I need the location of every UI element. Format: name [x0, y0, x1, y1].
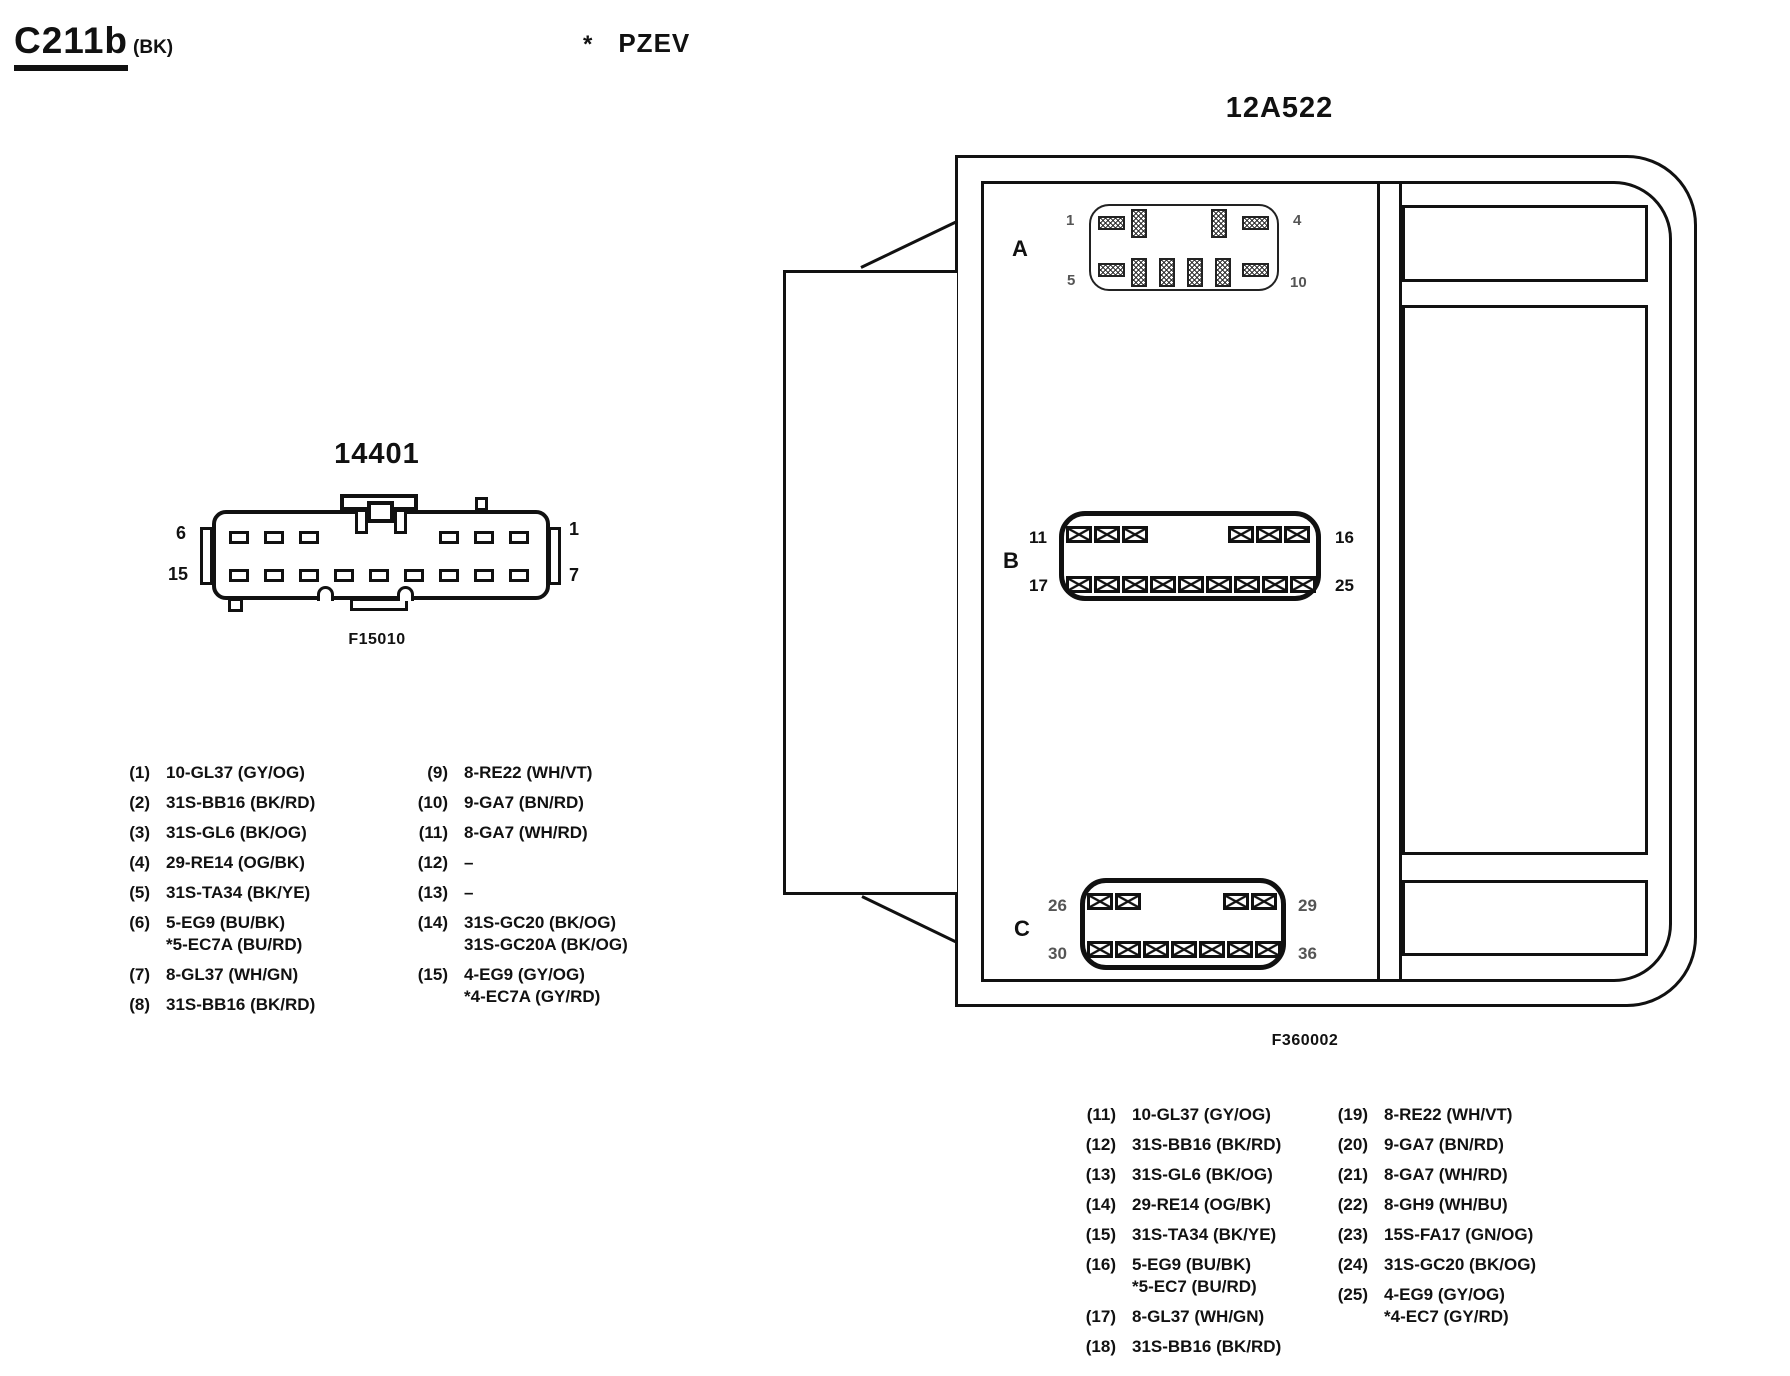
wire-item-number: (8) [112, 994, 150, 1016]
wire-list-item: (3) 31S-GL6 (BK/OG) [112, 822, 315, 844]
pin-label-c36: 36 [1298, 944, 1317, 964]
pin-box [1290, 576, 1316, 593]
wire-item-text: 4-EG9 (GY/OG) *4-EC7 (GY/RD) [1384, 1284, 1509, 1328]
wire-item-number: (21) [1330, 1164, 1368, 1186]
connector-b-pins-top-right [1228, 526, 1310, 543]
wire-list-item: (1) 10-GL37 (GY/OG) [112, 762, 315, 784]
pin-label-a4: 4 [1293, 212, 1301, 229]
wire-item-number: (16) [1078, 1254, 1116, 1298]
wire-item-text: 8-GL37 (WH/GN) [166, 964, 298, 986]
wire-list-item: (22) 8-GH9 (WH/BU) [1330, 1194, 1536, 1216]
pin-box [474, 569, 494, 582]
wire-item-number: (20) [1330, 1134, 1368, 1156]
pin-row-1-right [439, 531, 529, 544]
pin-box [229, 531, 249, 544]
pin-box [509, 531, 529, 544]
wire-list-item: (11) 10-GL37 (GY/OG) [1078, 1104, 1281, 1126]
wire-item-text: – [464, 882, 473, 904]
wiring-diagram-page: C211b(BK) *PZEV 14401 [0, 0, 1790, 1376]
pin-label-c29: 29 [1298, 896, 1317, 916]
flange-diagonal-bottom [861, 895, 958, 944]
pin-box [1131, 209, 1147, 238]
wire-list-item: (24) 31S-GC20 (BK/OG) [1330, 1254, 1536, 1276]
section-b-label: B [1003, 548, 1019, 574]
wire-item-number: (12) [1078, 1134, 1116, 1156]
panel-divider-line-left [1377, 181, 1380, 982]
wire-item-text: 31S-BB16 (BK/RD) [166, 792, 315, 814]
wire-item-text: 5-EG9 (BU/BK) *5-EC7 (BU/RD) [1132, 1254, 1257, 1298]
pin-row-2 [229, 569, 529, 582]
top-small-tab [475, 497, 488, 511]
bottom-notch-right [397, 586, 414, 601]
wire-list-14401-col1: (1) 10-GL37 (GY/OG) (2) 31S-BB16 (BK/RD)… [112, 762, 315, 1024]
wire-list-item: (13) 31S-GL6 (BK/OG) [1078, 1164, 1281, 1186]
pin-box [474, 531, 494, 544]
wire-list-item: (15) 4-EG9 (GY/OG) *4-EC7A (GY/RD) [410, 964, 628, 1008]
wire-list-item: (2) 31S-BB16 (BK/RD) [112, 792, 315, 814]
page-header: C211b(BK) [14, 20, 173, 71]
connector-b-pins-top-left [1066, 526, 1148, 543]
connector-14401-caption: F15010 [322, 631, 432, 649]
pin-box [1215, 258, 1231, 287]
pin-box [1098, 263, 1125, 277]
pin-box [1228, 526, 1254, 543]
pin-box [1171, 941, 1197, 958]
wire-list-item: (23) 15S-FA17 (GN/OG) [1330, 1224, 1536, 1246]
pin-box [1178, 576, 1204, 593]
pin-label-15: 15 [168, 564, 188, 585]
pin-box [1131, 258, 1147, 287]
bottom-notch-left [317, 586, 334, 601]
latch-prong-right [394, 509, 407, 534]
wire-list-item: (14) 29-RE14 (OG/BK) [1078, 1194, 1281, 1216]
connector-c-pins-top-left [1087, 893, 1141, 910]
wire-list-item: (15) 31S-TA34 (BK/YE) [1078, 1224, 1281, 1246]
wire-list-item: (16) 5-EG9 (BU/BK) *5-EC7 (BU/RD) [1078, 1254, 1281, 1298]
wire-list-item: (11) 8-GA7 (WH/RD) [410, 822, 628, 844]
wire-item-number: (15) [410, 964, 448, 1008]
wire-item-text: 8-GH9 (WH/BU) [1384, 1194, 1508, 1216]
latch-center-tab [367, 501, 394, 523]
connector-14401-label: 14401 [322, 438, 432, 471]
wire-item-text: 8-GL37 (WH/GN) [1132, 1306, 1264, 1328]
wire-list-item: (8) 31S-BB16 (BK/RD) [112, 994, 315, 1016]
side-rib-bottom [1402, 880, 1648, 956]
wire-list-14401-col2: (9) 8-RE22 (WH/VT) (10) 9-GA7 (BN/RD) (1… [410, 762, 628, 1016]
pin-box [1122, 526, 1148, 543]
pin-box [1159, 258, 1175, 287]
wire-item-text: 31S-GC20 (BK/OG) [1384, 1254, 1536, 1276]
wire-list-item: (12) 31S-BB16 (BK/RD) [1078, 1134, 1281, 1156]
wire-item-number: (13) [410, 882, 448, 904]
pin-label-6: 6 [176, 523, 186, 544]
wire-item-number: (7) [112, 964, 150, 986]
connector-14401-body [212, 510, 550, 600]
pin-label-1: 1 [569, 519, 579, 540]
wire-item-number: (19) [1330, 1104, 1368, 1126]
wire-item-number: (13) [1078, 1164, 1116, 1186]
pin-box [1115, 893, 1141, 910]
wire-item-text: 9-GA7 (BN/RD) [1384, 1134, 1504, 1156]
pin-box [439, 531, 459, 544]
wire-list-item: (19) 8-RE22 (WH/VT) [1330, 1104, 1536, 1126]
footnote-label: PZEV [618, 28, 690, 58]
wire-item-number: (2) [112, 792, 150, 814]
pin-box [1066, 526, 1092, 543]
pin-box [1284, 526, 1310, 543]
pin-box [1187, 258, 1203, 287]
pin-box [1150, 576, 1176, 593]
pin-box [509, 569, 529, 582]
footnote: *PZEV [583, 28, 690, 59]
wire-item-number: (3) [112, 822, 150, 844]
wire-item-number: (14) [1078, 1194, 1116, 1216]
wire-item-text: 31S-GL6 (BK/OG) [1132, 1164, 1273, 1186]
pin-box [1087, 893, 1113, 910]
wire-item-text: 9-GA7 (BN/RD) [464, 792, 584, 814]
pin-box [299, 569, 319, 582]
wire-item-text: 29-RE14 (OG/BK) [166, 852, 305, 874]
wire-item-text: 31S-BB16 (BK/RD) [1132, 1336, 1281, 1358]
pin-box [1143, 941, 1169, 958]
wire-item-text: 31S-TA34 (BK/YE) [1132, 1224, 1276, 1246]
pin-label-7: 7 [569, 565, 579, 586]
wire-list-item: (25) 4-EG9 (GY/OG) *4-EC7 (GY/RD) [1330, 1284, 1536, 1328]
wire-item-number: (4) [112, 852, 150, 874]
wire-list-item: (12) – [410, 852, 628, 874]
flange-diagonal-top [860, 220, 958, 269]
pin-box [1199, 941, 1225, 958]
connector-c-pins-top-right [1223, 893, 1277, 910]
connector-color-code: (BK) [133, 37, 173, 58]
wire-item-text: 31S-GL6 (BK/OG) [166, 822, 307, 844]
pin-label-c30: 30 [1048, 944, 1067, 964]
module-12a522-caption: F360002 [1245, 1032, 1365, 1050]
wire-list-item: (14) 31S-GC20 (BK/OG) 31S-GC20A (BK/OG) [410, 912, 628, 956]
wire-item-text: 4-EG9 (GY/OG) *4-EC7A (GY/RD) [464, 964, 600, 1008]
pin-box [1094, 526, 1120, 543]
pin-box [299, 531, 319, 544]
pin-box [1242, 263, 1269, 277]
wire-item-text: – [464, 852, 473, 874]
pin-box [1206, 576, 1232, 593]
pin-box [1098, 216, 1125, 230]
wire-item-number: (11) [410, 822, 448, 844]
wire-list-12a522-col1: (11) 10-GL37 (GY/OG) (12) 31S-BB16 (BK/R… [1078, 1104, 1281, 1366]
wire-item-number: (15) [1078, 1224, 1116, 1246]
wire-item-text: 8-GA7 (WH/RD) [464, 822, 588, 844]
wire-item-text: 10-GL37 (GY/OG) [166, 762, 305, 784]
wire-list-item: (13) – [410, 882, 628, 904]
wire-list-item: (20) 9-GA7 (BN/RD) [1330, 1134, 1536, 1156]
wire-item-number: (11) [1078, 1104, 1116, 1126]
section-a-label: A [1012, 236, 1028, 262]
pin-label-b17: 17 [1029, 576, 1048, 596]
wire-list-item: (9) 8-RE22 (WH/VT) [410, 762, 628, 784]
pin-box [1115, 941, 1141, 958]
pin-box [264, 531, 284, 544]
wire-list-item: (6) 5-EG9 (BU/BK) *5-EC7A (BU/RD) [112, 912, 315, 956]
connector-c-pins-bottom [1087, 941, 1281, 958]
wire-item-text: 15S-FA17 (GN/OG) [1384, 1224, 1533, 1246]
pin-label-b11: 11 [1029, 528, 1047, 548]
pin-label-b25: 25 [1335, 576, 1354, 596]
wire-item-number: (12) [410, 852, 448, 874]
wire-item-text: 31S-BB16 (BK/RD) [166, 994, 315, 1016]
pin-label-a5: 5 [1067, 272, 1075, 289]
pin-box [1251, 893, 1277, 910]
wire-list-item: (21) 8-GA7 (WH/RD) [1330, 1164, 1536, 1186]
wire-list-item: (7) 8-GL37 (WH/GN) [112, 964, 315, 986]
pin-box [1122, 576, 1148, 593]
connector-id-title: C211b [14, 20, 128, 71]
footnote-asterisk: * [583, 31, 592, 58]
pin-box [1234, 576, 1260, 593]
wire-item-number: (6) [112, 912, 150, 956]
wire-item-number: (24) [1330, 1254, 1368, 1276]
pin-box [1066, 576, 1092, 593]
pin-label-c26: 26 [1048, 896, 1067, 916]
wire-item-number: (25) [1330, 1284, 1368, 1328]
wire-list-item: (5) 31S-TA34 (BK/YE) [112, 882, 315, 904]
pin-label-b16: 16 [1335, 528, 1354, 548]
pin-box [1255, 941, 1281, 958]
wire-item-text: 10-GL37 (GY/OG) [1132, 1104, 1271, 1126]
connector-b-pins-bottom [1066, 576, 1316, 593]
side-rib-top [1402, 205, 1648, 282]
wire-item-text: 31S-BB16 (BK/RD) [1132, 1134, 1281, 1156]
side-rib-middle [1402, 305, 1648, 855]
pin-box [229, 569, 249, 582]
pin-box [1223, 893, 1249, 910]
wire-item-text: 31S-GC20 (BK/OG) 31S-GC20A (BK/OG) [464, 912, 628, 956]
wire-list-item: (4) 29-RE14 (OG/BK) [112, 852, 315, 874]
pin-box [404, 569, 424, 582]
wire-item-number: (5) [112, 882, 150, 904]
pin-box [264, 569, 284, 582]
pin-box [1262, 576, 1288, 593]
pin-box [334, 569, 354, 582]
module-12a522-label: 12A522 [1222, 92, 1337, 125]
wire-item-number: (1) [112, 762, 150, 784]
wire-item-text: 5-EG9 (BU/BK) *5-EC7A (BU/RD) [166, 912, 302, 956]
pin-label-a10: 10 [1290, 274, 1307, 291]
pin-box [1227, 941, 1253, 958]
wire-item-number: (9) [410, 762, 448, 784]
wire-item-number: (23) [1330, 1224, 1368, 1246]
wire-item-number: (18) [1078, 1336, 1116, 1358]
pin-box [1087, 941, 1113, 958]
pin-box [1256, 526, 1282, 543]
wire-list-item: (10) 9-GA7 (BN/RD) [410, 792, 628, 814]
pin-box [439, 569, 459, 582]
pin-box [369, 569, 389, 582]
wire-item-text: 8-RE22 (WH/VT) [1384, 1104, 1512, 1126]
left-flange [783, 270, 957, 895]
wire-list-item: (18) 31S-BB16 (BK/RD) [1078, 1336, 1281, 1358]
wire-item-number: (14) [410, 912, 448, 956]
pin-row-1-left [229, 531, 319, 544]
wire-item-text: 29-RE14 (OG/BK) [1132, 1194, 1271, 1216]
wire-list-12a522-col2: (19) 8-RE22 (WH/VT) (20) 9-GA7 (BN/RD) (… [1330, 1104, 1536, 1336]
section-c-label: C [1014, 916, 1030, 942]
wire-item-text: 31S-TA34 (BK/YE) [166, 882, 310, 904]
wire-item-number: (17) [1078, 1306, 1116, 1328]
pin-box [1242, 216, 1269, 230]
wire-item-text: 8-GA7 (WH/RD) [1384, 1164, 1508, 1186]
bottom-left-tab [228, 598, 243, 612]
wire-list-item: (17) 8-GL37 (WH/GN) [1078, 1306, 1281, 1328]
wire-item-number: (10) [410, 792, 448, 814]
wire-item-number: (22) [1330, 1194, 1368, 1216]
pin-box [1094, 576, 1120, 593]
wire-item-text: 8-RE22 (WH/VT) [464, 762, 592, 784]
pin-label-a1: 1 [1066, 212, 1074, 229]
pin-box [1211, 209, 1227, 238]
